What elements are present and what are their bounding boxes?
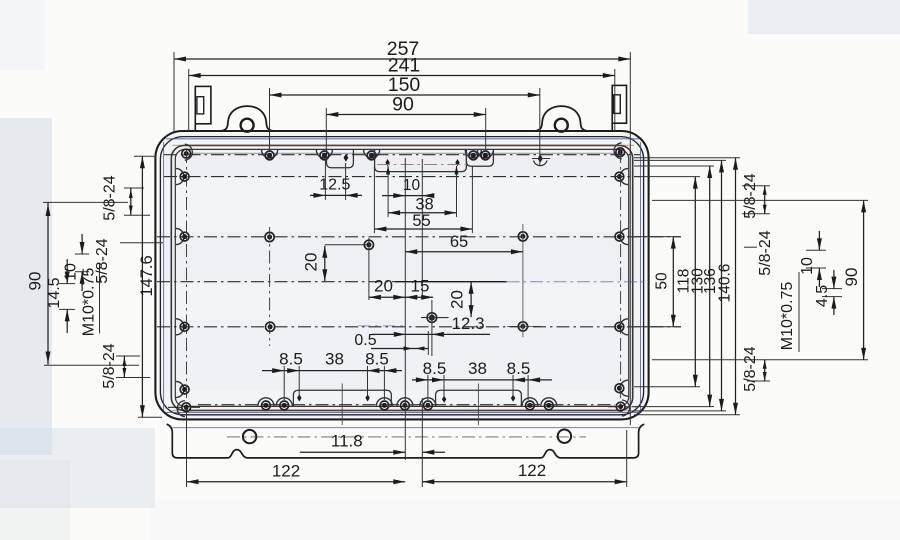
svg-text:20: 20 (302, 253, 321, 272)
svg-text:0.5: 0.5 (354, 332, 376, 349)
svg-text:4.5: 4.5 (814, 285, 831, 307)
svg-text:65: 65 (450, 233, 468, 251)
svg-text:20: 20 (374, 277, 393, 296)
svg-text:12.3: 12.3 (451, 314, 484, 333)
svg-text:55: 55 (412, 212, 430, 230)
svg-text:15: 15 (411, 277, 430, 296)
svg-text:140.6: 140.6 (717, 264, 734, 303)
svg-text:11.8: 11.8 (331, 432, 363, 451)
svg-text:5/8-24: 5/8-24 (94, 238, 111, 283)
svg-text:8.5: 8.5 (279, 350, 303, 369)
svg-text:14.5: 14.5 (46, 277, 63, 308)
svg-text:20: 20 (448, 290, 467, 309)
svg-text:10: 10 (403, 177, 421, 194)
svg-text:122: 122 (272, 462, 300, 481)
svg-text:38: 38 (468, 359, 487, 378)
svg-text:90: 90 (392, 94, 414, 116)
svg-text:147.6: 147.6 (138, 255, 156, 296)
svg-text:50: 50 (654, 272, 671, 290)
svg-text:5/8-24: 5/8-24 (742, 173, 759, 218)
svg-text:12.5: 12.5 (319, 177, 350, 194)
svg-text:90: 90 (26, 272, 45, 291)
svg-text:5/8-24: 5/8-24 (757, 230, 774, 275)
svg-text:122: 122 (518, 461, 546, 480)
svg-text:10: 10 (799, 257, 816, 275)
svg-text:38: 38 (415, 196, 433, 214)
svg-text:10: 10 (63, 263, 80, 281)
svg-text:8.5: 8.5 (365, 350, 389, 369)
svg-text:38: 38 (325, 350, 344, 369)
svg-text:8.5: 8.5 (507, 359, 531, 378)
svg-text:M10*0.75: M10*0.75 (779, 282, 796, 351)
svg-text:5/8-24: 5/8-24 (102, 175, 119, 220)
svg-text:5/8-24: 5/8-24 (101, 343, 118, 388)
svg-text:5/8-24: 5/8-24 (742, 346, 759, 391)
svg-text:90: 90 (842, 268, 861, 287)
svg-text:8.5: 8.5 (423, 359, 447, 378)
